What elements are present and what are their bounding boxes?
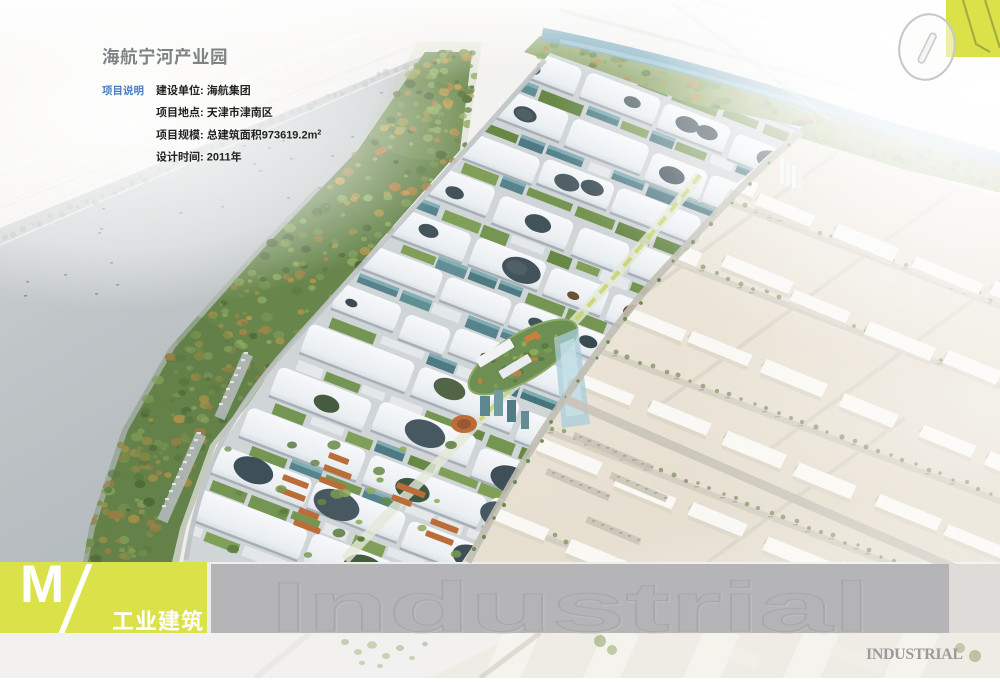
svg-text:Industrial: Industrial <box>270 568 870 646</box>
svg-text:设计时间: 2011年: 设计时间: 2011年 <box>156 149 242 165</box>
svg-text:INDUSTRIAL: INDUSTRIAL <box>866 646 963 663</box>
svg-text:建设单位: 海航集团: 建设单位: 海航集团 <box>156 82 251 98</box>
svg-text:项目规模: 总建筑面积973619.2m2: 项目规模: 总建筑面积973619.2m2 <box>156 126 321 142</box>
svg-text:项目地点: 天津市津南区: 项目地点: 天津市津南区 <box>156 104 273 120</box>
svg-text:海航宁河产业园: 海航宁河产业园 <box>102 44 228 69</box>
svg-text:M: M <box>20 555 64 614</box>
svg-text:工业建筑: 工业建筑 <box>112 604 204 636</box>
svg-text:项目说明: 项目说明 <box>102 83 144 98</box>
